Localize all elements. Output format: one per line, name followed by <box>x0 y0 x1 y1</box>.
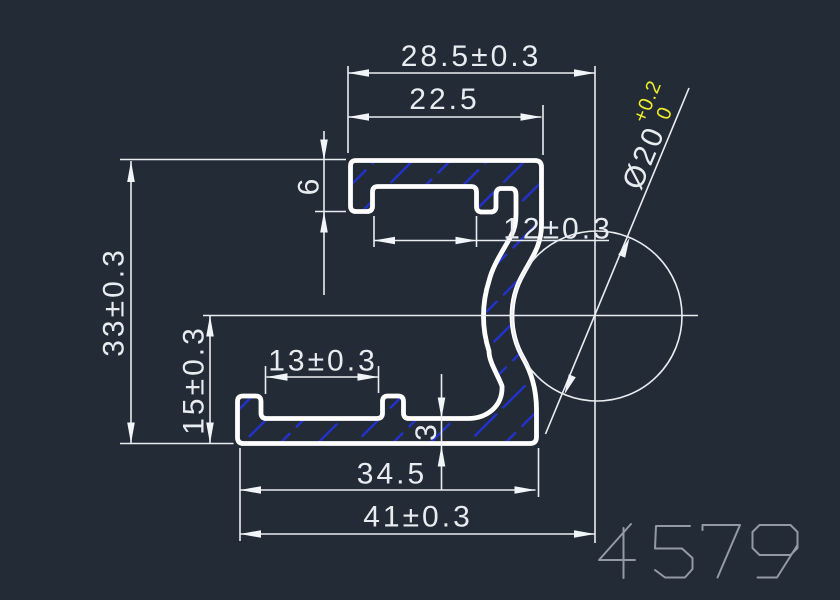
svg-text:33±0.3: 33±0.3 <box>98 247 131 357</box>
svg-text:12±0.3: 12±0.3 <box>503 213 613 246</box>
svg-text:13±0.3: 13±0.3 <box>268 345 378 378</box>
svg-text:28.5±0.3: 28.5±0.3 <box>401 40 542 73</box>
svg-text:6: 6 <box>293 176 326 196</box>
svg-text:15±0.3: 15±0.3 <box>178 325 211 435</box>
svg-text:34.5: 34.5 <box>357 458 427 491</box>
svg-text:3: 3 <box>410 421 443 441</box>
svg-text:22.5: 22.5 <box>409 83 479 116</box>
svg-text:41±0.3: 41±0.3 <box>363 501 473 534</box>
